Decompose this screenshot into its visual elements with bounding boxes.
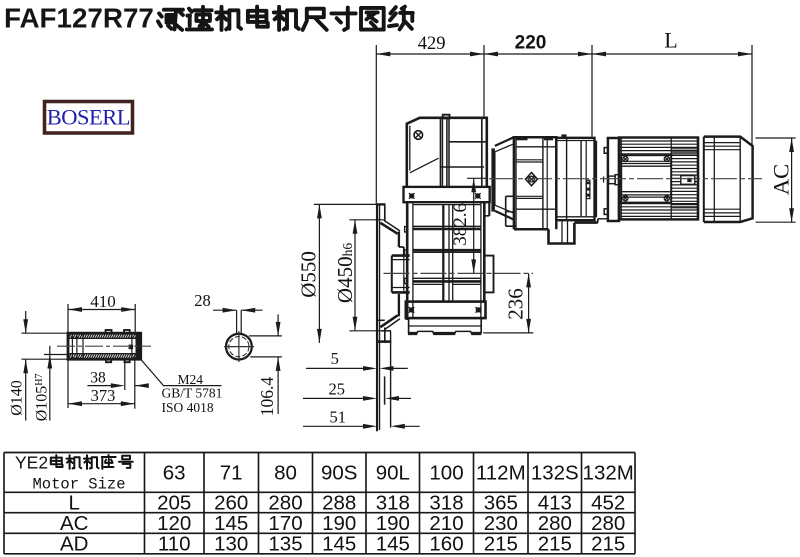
svg-text:382.6: 382.6 bbox=[450, 203, 471, 246]
svg-text:132S: 132S bbox=[531, 462, 579, 485]
svg-text:145: 145 bbox=[322, 533, 356, 556]
svg-text:AD: AD bbox=[60, 533, 88, 556]
svg-text:280: 280 bbox=[268, 492, 302, 515]
svg-text:BOSERL: BOSERL bbox=[47, 105, 130, 130]
svg-text:205: 205 bbox=[157, 492, 191, 515]
svg-text:215: 215 bbox=[591, 533, 625, 556]
svg-text:25: 25 bbox=[329, 380, 346, 399]
svg-text:106.4: 106.4 bbox=[257, 377, 277, 417]
svg-text:ISO 4018: ISO 4018 bbox=[162, 400, 214, 415]
svg-text:FAF127R77: FAF127R77 bbox=[4, 3, 154, 34]
svg-text:L: L bbox=[68, 492, 79, 515]
svg-text:410: 410 bbox=[90, 292, 116, 311]
svg-text:215: 215 bbox=[484, 533, 518, 556]
svg-text:80: 80 bbox=[274, 462, 297, 485]
svg-text:90S: 90S bbox=[321, 462, 357, 485]
svg-text:51: 51 bbox=[330, 407, 347, 426]
svg-text:AC: AC bbox=[769, 164, 794, 195]
svg-text:112M: 112M bbox=[476, 462, 526, 485]
svg-text:260: 260 bbox=[214, 492, 248, 515]
svg-text:288: 288 bbox=[322, 492, 356, 515]
svg-text:38: 38 bbox=[90, 370, 106, 387]
svg-text:135: 135 bbox=[268, 533, 302, 556]
svg-text:160: 160 bbox=[429, 533, 463, 556]
svg-text:5: 5 bbox=[331, 349, 339, 368]
svg-text:373: 373 bbox=[91, 386, 116, 405]
svg-text:145: 145 bbox=[376, 533, 410, 556]
svg-text:GB/T 5781: GB/T 5781 bbox=[162, 385, 223, 400]
svg-text:318: 318 bbox=[429, 492, 463, 515]
svg-text:429: 429 bbox=[418, 34, 446, 54]
svg-text:236: 236 bbox=[504, 288, 528, 320]
svg-text:413: 413 bbox=[538, 492, 572, 515]
svg-text:220: 220 bbox=[515, 32, 547, 53]
svg-text:63: 63 bbox=[163, 462, 186, 485]
svg-text:110: 110 bbox=[158, 533, 191, 556]
svg-text:365: 365 bbox=[484, 492, 518, 515]
svg-text:132M: 132M bbox=[583, 462, 634, 485]
svg-text:71: 71 bbox=[220, 462, 243, 485]
svg-text:452: 452 bbox=[591, 492, 625, 515]
svg-text:L: L bbox=[664, 28, 677, 53]
svg-text:YE2: YE2 bbox=[15, 453, 48, 473]
svg-text:130: 130 bbox=[214, 533, 248, 556]
svg-text:215: 215 bbox=[538, 533, 572, 556]
svg-text:Ø550: Ø550 bbox=[297, 251, 321, 298]
svg-text:Ø140: Ø140 bbox=[8, 380, 25, 416]
svg-text:90L: 90L bbox=[376, 462, 410, 485]
svg-text:100: 100 bbox=[429, 462, 463, 485]
svg-text:28: 28 bbox=[194, 291, 211, 310]
svg-text:318: 318 bbox=[376, 492, 410, 515]
